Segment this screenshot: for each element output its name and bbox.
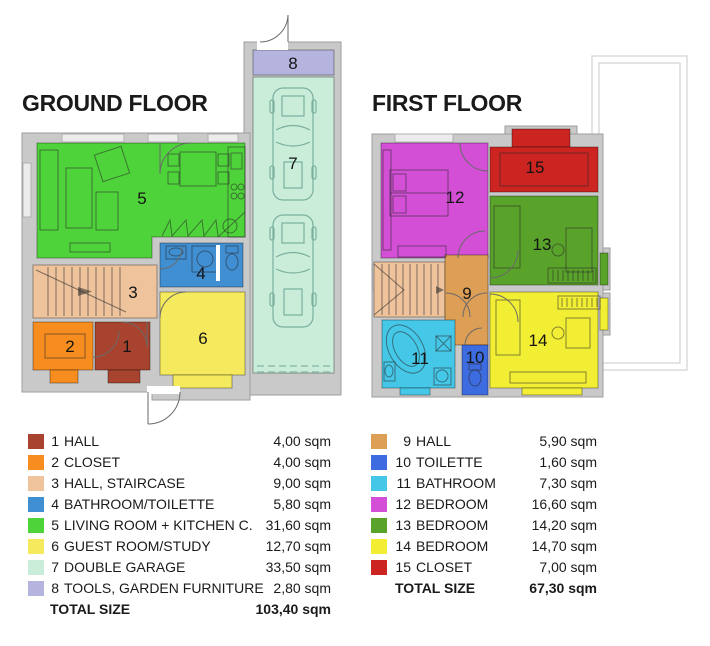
room-15-bump	[512, 129, 570, 147]
legend-room-size: 12,70 sqm	[266, 536, 331, 557]
legend-room-name: CLOSET	[416, 557, 472, 578]
total-size-label: TOTAL SIZE	[50, 599, 130, 620]
legend-room-number: 10	[395, 452, 411, 473]
legend-room-number: 14	[395, 536, 411, 557]
legend-row-12: 12 BEDROOM 16,60 sqm	[371, 494, 597, 515]
legend-room-size: 4,00 sqm	[273, 431, 331, 452]
room-14-number: 14	[529, 331, 548, 350]
legend-row-7: 7 DOUBLE GARAGE 33,50 sqm	[28, 557, 331, 578]
room-15-swatch	[371, 560, 387, 575]
room-8-number: 8	[288, 54, 297, 73]
legend-room-size: 14,70 sqm	[532, 536, 597, 557]
legend-room-number: 13	[395, 515, 411, 536]
room-3-number: 3	[128, 283, 137, 302]
legend-row-5: 5 LIVING ROOM + KITCHEN C. 31,60 sqm	[28, 515, 331, 536]
legend-row-10: 10 TOILETTE 1,60 sqm	[371, 452, 597, 473]
legend-row-2: 2 CLOSET 4,00 sqm	[28, 452, 331, 473]
room-14-window-bay	[522, 388, 582, 395]
legend-room-number: 4	[50, 494, 59, 515]
floor-plan-canvas: 5 3 4 6 2 1 8 7	[0, 0, 710, 646]
bathroom-divider-wall	[216, 245, 220, 281]
room-11-window-bay	[400, 388, 430, 395]
legend-row-8: 8 TOOLS, GARDEN FURNITURE 2,80 sqm	[28, 578, 331, 599]
legend-room-size: 16,60 sqm	[532, 494, 597, 515]
room-7-garage	[253, 77, 334, 373]
legend-room-number: 7	[50, 557, 59, 578]
room-5-number: 5	[137, 189, 146, 208]
room-7-number: 7	[288, 154, 297, 173]
room-13-balcony-door	[600, 253, 608, 285]
legend-room-name: TOILETTE	[416, 452, 483, 473]
room-14-balcony-door	[600, 298, 608, 330]
legend-room-name: CLOSET	[64, 452, 120, 473]
room-5-swatch	[28, 518, 44, 533]
first-floor-title: FIRST FLOOR	[372, 90, 522, 117]
legend-row-15: 15 CLOSET 7,00 sqm	[371, 557, 597, 578]
legend-row-6: 6 GUEST ROOM/STUDY 12,70 sqm	[28, 536, 331, 557]
legend-room-name: BATHROOM	[416, 473, 496, 494]
legend-room-number: 9	[395, 431, 411, 452]
room-9-swatch	[371, 434, 387, 449]
legend-room-size: 14,20 sqm	[532, 515, 597, 536]
legend-room-name: BEDROOM	[416, 494, 488, 515]
legend-room-number: 12	[395, 494, 411, 515]
legend-room-size: 33,50 sqm	[266, 557, 331, 578]
room-11-number: 11	[411, 349, 429, 368]
legend-room-number: 3	[50, 473, 59, 494]
total-size-value: 67,30 sqm	[529, 578, 597, 599]
legend-room-name: TOOLS, GARDEN FURNITURE	[64, 578, 264, 599]
legend-room-size: 1,60 sqm	[539, 452, 597, 473]
legend-room-size: 9,00 sqm	[273, 473, 331, 494]
room-3-hall-staircase	[33, 265, 157, 318]
legend-room-number: 11	[395, 473, 411, 494]
legend-row-1: 1 HALL 4,00 sqm	[28, 431, 331, 452]
room-6-swatch	[28, 539, 44, 554]
ground-floor-legend: 1 HALL 4,00 sqm 2 CLOSET 4,00 sqm 3 HALL…	[28, 431, 331, 620]
legend-room-number: 5	[50, 515, 59, 536]
legend-room-name: BEDROOM	[416, 536, 488, 557]
legend-row-3: 3 HALL, STAIRCASE 9,00 sqm	[28, 473, 331, 494]
room-4-number: 4	[196, 264, 205, 283]
room-6-window-bay	[173, 375, 232, 388]
legend-room-name: HALL	[416, 431, 451, 452]
legend-room-number: 8	[50, 578, 59, 599]
room-8-swatch	[28, 581, 44, 596]
room-10-swatch	[371, 455, 387, 470]
legend-room-size: 7,30 sqm	[539, 473, 597, 494]
legend-room-name: HALL, STAIRCASE	[64, 473, 185, 494]
legend-room-size: 7,00 sqm	[539, 557, 597, 578]
room-2-closet	[33, 322, 93, 370]
legend-room-size: 4,00 sqm	[273, 452, 331, 473]
legend-room-size: 5,80 sqm	[273, 494, 331, 515]
ground-floor-title: GROUND FLOOR	[22, 90, 208, 117]
room-6-number: 6	[198, 329, 207, 348]
swatch-placeholder	[371, 581, 387, 596]
legend-room-size: 31,60 sqm	[266, 515, 331, 536]
room-1-number: 1	[122, 337, 131, 356]
legend-room-size: 2,80 sqm	[273, 578, 331, 599]
legend-room-name: HALL	[64, 431, 99, 452]
room-2-number: 2	[65, 337, 74, 356]
legend-room-number: 15	[395, 557, 411, 578]
legend-room-size: 5,90 sqm	[539, 431, 597, 452]
swatch-placeholder	[28, 602, 44, 617]
room-2-swatch	[28, 455, 44, 470]
room-13-swatch	[371, 518, 387, 533]
room-1-swatch	[28, 434, 44, 449]
legend-total-row: TOTAL SIZE 103,40 sqm	[28, 599, 331, 620]
room-1-step	[108, 370, 140, 383]
legend-room-name: BATHROOM/TOILETTE	[64, 494, 214, 515]
total-size-label: TOTAL SIZE	[395, 578, 475, 599]
room-15-number: 15	[526, 158, 545, 177]
room-4-swatch	[28, 497, 44, 512]
ground-floor-plan: 5 3 4 6 2 1 8 7	[22, 15, 341, 424]
legend-room-number: 1	[50, 431, 59, 452]
legend-total-row: TOTAL SIZE 67,30 sqm	[371, 578, 597, 599]
legend-row-4: 4 BATHROOM/TOILETTE 5,80 sqm	[28, 494, 331, 515]
room-2-step	[50, 370, 78, 383]
legend-room-name: LIVING ROOM + KITCHEN C.	[64, 515, 253, 536]
legend-room-name: BEDROOM	[416, 515, 488, 536]
room-14-swatch	[371, 539, 387, 554]
room-12-swatch	[371, 497, 387, 512]
legend-row-14: 14 BEDROOM 14,70 sqm	[371, 536, 597, 557]
room-9-number: 9	[462, 284, 471, 303]
room-13-number: 13	[533, 235, 552, 254]
room-11-swatch	[371, 476, 387, 491]
room-3-swatch	[28, 476, 44, 491]
legend-row-9: 9 HALL 5,90 sqm	[371, 431, 597, 452]
legend-row-11: 11 BATHROOM 7,30 sqm	[371, 473, 597, 494]
room-12-bedroom	[381, 143, 488, 258]
room-10-number: 10	[466, 348, 485, 367]
legend-room-name: GUEST ROOM/STUDY	[64, 536, 211, 557]
legend-room-number: 6	[50, 536, 59, 557]
legend-room-name: DOUBLE GARAGE	[64, 557, 185, 578]
legend-room-number: 2	[50, 452, 59, 473]
room-7-swatch	[28, 560, 44, 575]
first-floor-legend: 9 HALL 5,90 sqm 10 TOILETTE 1,60 sqm 11 …	[371, 431, 597, 599]
room-12-number: 12	[446, 188, 465, 207]
legend-row-13: 13 BEDROOM 14,20 sqm	[371, 515, 597, 536]
total-size-value: 103,40 sqm	[256, 599, 332, 620]
